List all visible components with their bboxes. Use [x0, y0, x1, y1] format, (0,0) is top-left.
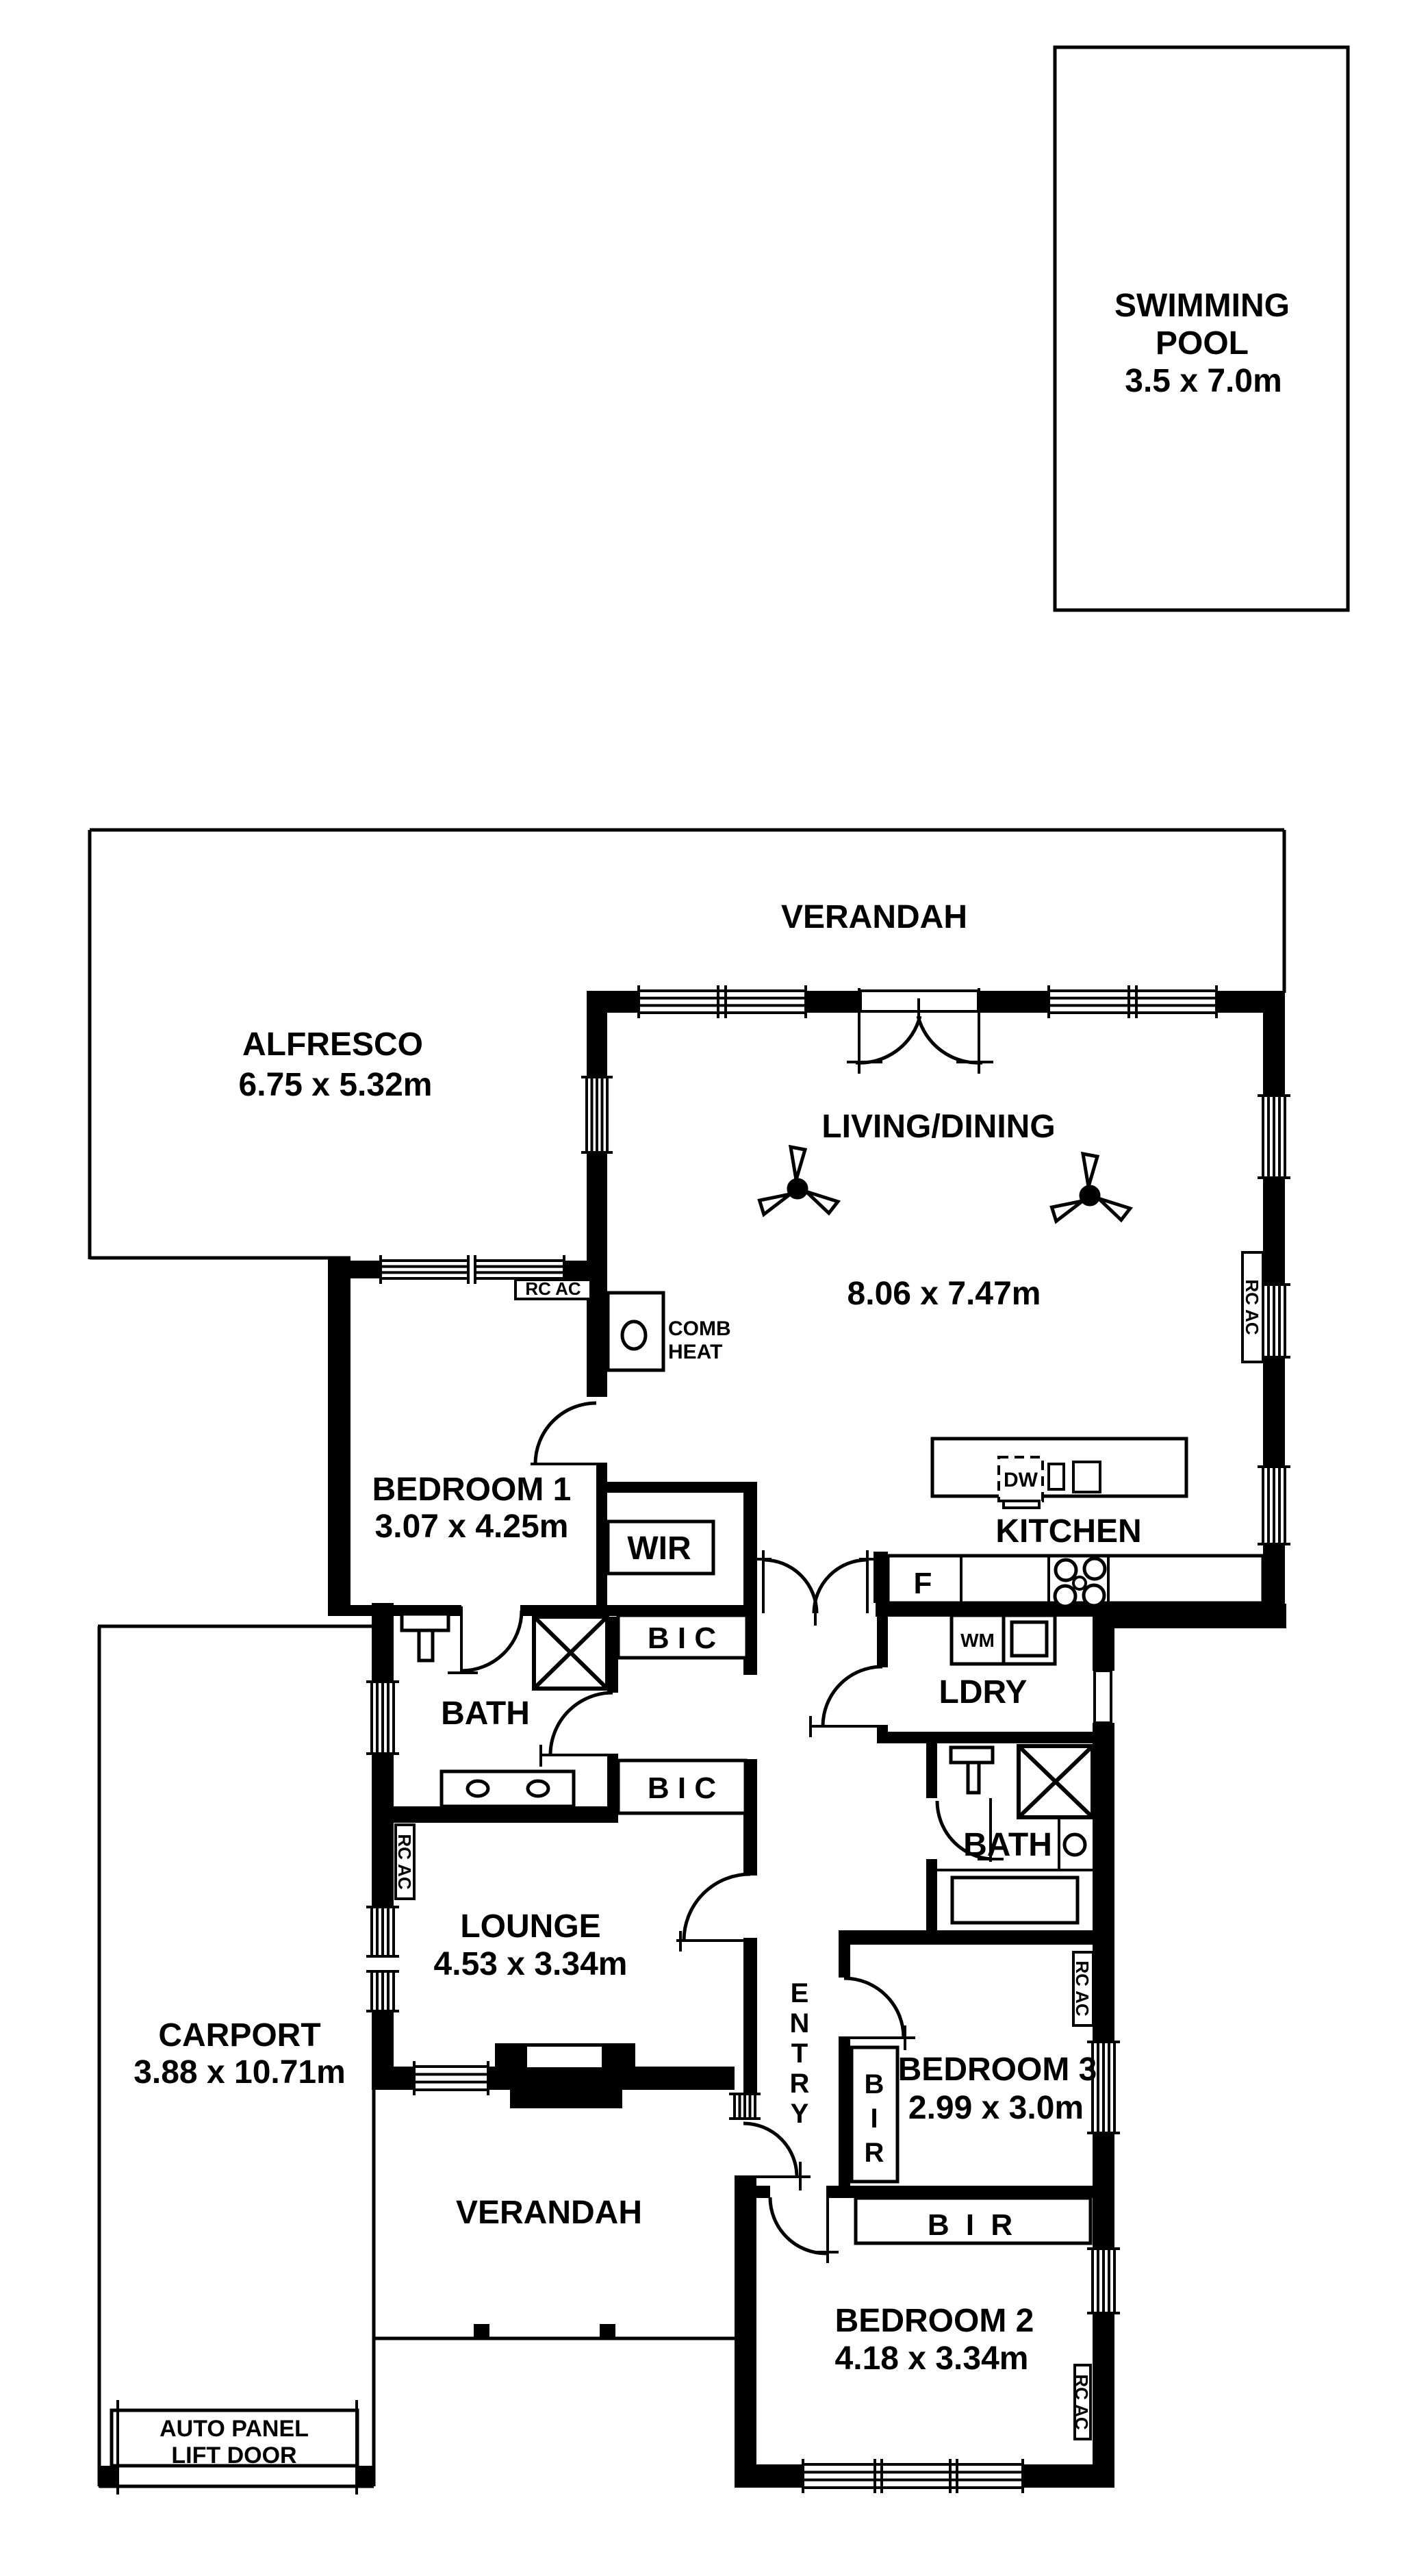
svg-text:RC AC: RC AC	[1072, 1960, 1093, 2017]
svg-text:RC AC: RC AC	[1071, 2374, 1092, 2430]
svg-text:KITCHEN: KITCHEN	[995, 1513, 1141, 1550]
svg-text:B: B	[865, 2069, 884, 2099]
svg-text:E: E	[791, 1978, 809, 2008]
svg-text:3.07 x 4.25m: 3.07 x 4.25m	[375, 1508, 569, 1545]
svg-text:2.99 x 3.0m: 2.99 x 3.0m	[908, 2090, 1084, 2126]
svg-text:VERANDAH: VERANDAH	[781, 899, 967, 935]
svg-text:N: N	[790, 2008, 810, 2038]
svg-text:B I C: B I C	[648, 1621, 716, 1655]
svg-text:R: R	[790, 2069, 810, 2099]
svg-text:BATH: BATH	[963, 1827, 1052, 1863]
svg-text:AUTO PANEL: AUTO PANEL	[160, 2416, 309, 2442]
svg-text:BEDROOM 3: BEDROOM 3	[898, 2051, 1097, 2088]
svg-text:B I R: B I R	[928, 2208, 1017, 2242]
svg-text:BEDROOM 1: BEDROOM 1	[372, 1472, 572, 1508]
svg-text:4.18 x 3.34m: 4.18 x 3.34m	[835, 2340, 1029, 2377]
svg-text:B I C: B I C	[648, 1771, 716, 1805]
svg-text:T: T	[791, 2038, 808, 2069]
svg-text:LIVING/DINING: LIVING/DINING	[821, 1109, 1055, 1145]
svg-text:LIFT DOOR: LIFT DOOR	[171, 2442, 296, 2468]
svg-text:ALFRESCO: ALFRESCO	[242, 1026, 423, 1063]
svg-text:WM: WM	[960, 1630, 995, 1651]
svg-text:HEAT: HEAT	[668, 1341, 722, 1363]
svg-text:SWIMMING: SWIMMING	[1114, 288, 1290, 324]
svg-text:WIR: WIR	[627, 1530, 691, 1567]
svg-text:BATH: BATH	[441, 1695, 530, 1732]
svg-text:3.88 x 10.71m: 3.88 x 10.71m	[133, 2054, 346, 2091]
svg-text:RC AC: RC AC	[1242, 1279, 1262, 1335]
svg-text:3.5 x 7.0m: 3.5 x 7.0m	[1125, 363, 1282, 399]
svg-text:RC AC: RC AC	[525, 1278, 581, 1299]
svg-text:VERANDAH: VERANDAH	[456, 2195, 642, 2231]
svg-text:Y: Y	[791, 2099, 809, 2129]
svg-text:CARPORT: CARPORT	[158, 2017, 320, 2054]
svg-text:LOUNGE: LOUNGE	[460, 1908, 600, 1945]
svg-text:F: F	[914, 1567, 932, 1600]
svg-text:BEDROOM 2: BEDROOM 2	[835, 2303, 1034, 2339]
svg-text:8.06 x 7.47m: 8.06 x 7.47m	[847, 1276, 1041, 1312]
svg-text:6.75 x 5.32m: 6.75 x 5.32m	[239, 1067, 433, 1103]
svg-text:4.53 x 3.34m: 4.53 x 3.34m	[434, 1946, 628, 1982]
svg-text:LDRY: LDRY	[939, 1674, 1028, 1710]
svg-text:COMB: COMB	[668, 1317, 731, 1340]
svg-text:R: R	[865, 2138, 884, 2168]
svg-text:RC AC: RC AC	[394, 1834, 415, 1890]
svg-text:DW: DW	[1004, 1469, 1038, 1491]
svg-text:I: I	[870, 2104, 878, 2134]
svg-text:POOL: POOL	[1156, 325, 1249, 362]
